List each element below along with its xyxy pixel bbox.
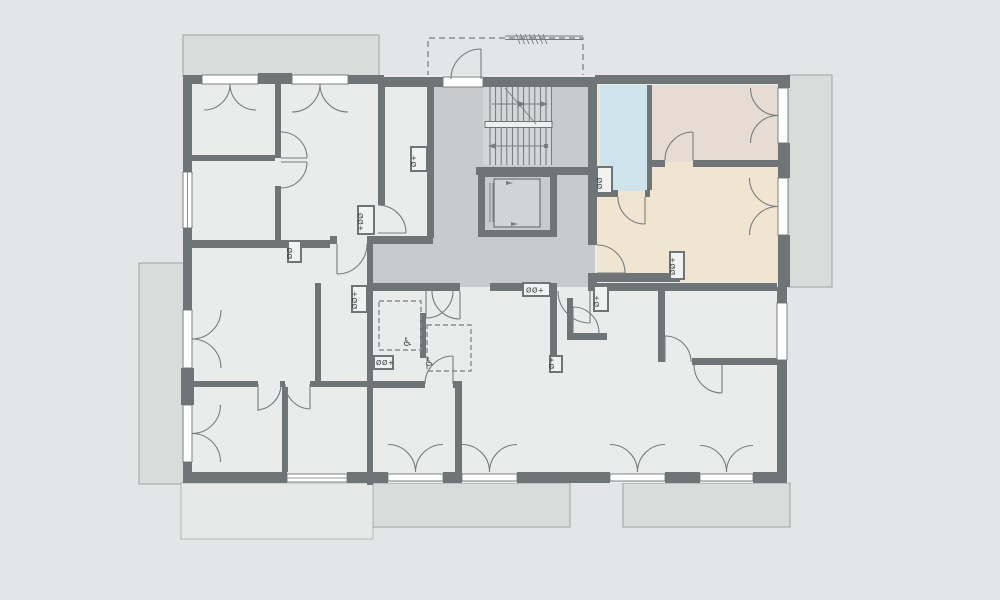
window [292,75,348,84]
window-door [183,405,192,462]
shaft-label: ØØ [286,247,294,259]
wheelchair-icon: ♿ [402,335,413,349]
shaft-label: Ø+ [593,295,601,307]
shaft-symbol-box: ØØ [596,167,612,193]
canopy-dashed-outline [428,38,583,77]
window-door [388,474,443,481]
shaft-label: Ø+ [548,357,556,369]
balcony-bottom-left [373,483,570,527]
shaft-symbol-box: Ø+ [410,147,427,171]
stairwell [483,87,552,165]
window-door [610,474,665,481]
floor-plan-page: Ø+ +ØØ ØØ ØØ+ ØØ+ ØØ+ Ø+ ØØ [0,0,1000,600]
entrance-mat-hatch [516,34,547,44]
shaft-label: +ØØ [357,213,365,231]
window-door [700,474,753,481]
window-door [778,178,788,235]
shaft-symbol-box: ØØ+ [523,283,550,296]
window [202,75,258,84]
balcony-top-right [788,75,832,287]
shaft-label: ØØ+ [526,287,544,295]
shaft-label: ØØ+ [669,257,677,275]
shaft-symbol-box: Ø+ [548,356,562,372]
shaft-symbol-box: ØØ [286,241,301,262]
entrance-opening [443,77,483,87]
window-door [462,474,517,481]
terrace-bottom-left [181,483,373,539]
shaft-symbol-box: +ØØ [357,206,374,234]
window-door [183,310,192,368]
stair-mid-landing [485,122,552,128]
shaft-label: ØØ+ [376,359,394,367]
shaft-symbol-box: ØØ+ [351,286,367,312]
shaft-label: Ø+ [410,155,418,167]
shaft-symbol-box: Ø+ [593,286,608,311]
elevator-shaft-wall [478,230,557,237]
window [777,303,787,360]
window-door [778,88,788,143]
balcony-bottom-right [623,483,790,527]
balcony-top-left [183,35,379,76]
elevator-shaft-wall [478,170,485,237]
floor-plan-svg: Ø+ +ØØ ØØ ØØ+ ØØ+ ØØ+ Ø+ ØØ [0,0,1000,600]
shaft-symbol-box: ØØ+ [669,252,684,279]
entrance-canopy [428,34,583,77]
balcony-left [139,263,184,484]
stair-line-endpoint [544,144,548,148]
elevator-shaft-wall [550,170,557,237]
shaft-symbol-box: ØØ+ [374,356,394,369]
elevator-car [494,179,540,227]
wheelchair-icon: ♿ [424,355,435,369]
entrance-door-swing [451,49,481,79]
shaft-label: ØØ+ [351,291,359,309]
shaft-label: ØØ [596,177,604,189]
